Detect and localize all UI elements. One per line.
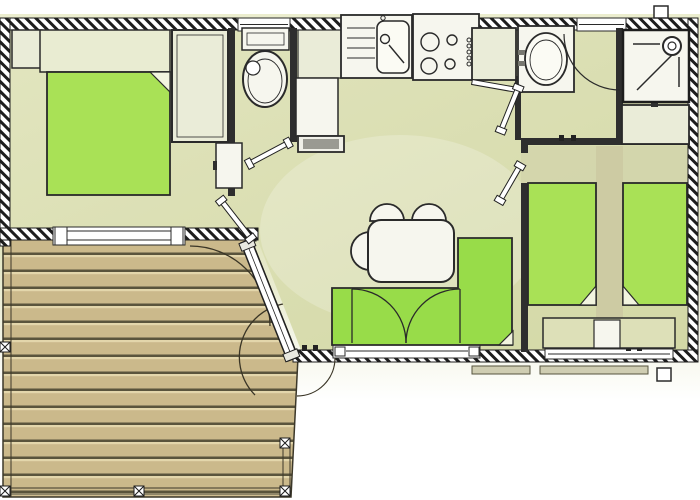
toilet-flush xyxy=(246,61,260,75)
hall-cabinet xyxy=(216,143,242,188)
counter-leg xyxy=(296,78,338,136)
pillow-shelf xyxy=(40,30,170,72)
outside-step-1 xyxy=(472,366,530,374)
single-bed-left xyxy=(528,183,596,305)
wardrobe xyxy=(172,30,228,142)
counter-corner xyxy=(298,30,343,78)
floor-plan-drawing xyxy=(0,0,700,500)
nightstand xyxy=(12,30,42,68)
vent-top xyxy=(654,6,668,18)
vent-bottom xyxy=(657,368,671,381)
sink-bowl xyxy=(377,21,409,73)
basin-tap-2 xyxy=(518,61,525,66)
washbasin xyxy=(525,33,567,85)
wall-living-bedroom2 xyxy=(521,183,528,352)
shower-head-icon xyxy=(663,37,681,55)
bathroom-wardrobe xyxy=(472,28,516,80)
hall-cabinet-handle xyxy=(213,161,217,170)
double-bed xyxy=(47,72,170,195)
basin-tap-1 xyxy=(518,50,525,55)
master-bedroom-window xyxy=(53,227,185,245)
wall-left xyxy=(0,18,10,246)
wc xyxy=(242,28,289,107)
floor-plan-canvas xyxy=(0,0,700,500)
outside-step-2 xyxy=(540,366,648,374)
counter-end-gray xyxy=(303,139,339,149)
shower-room xyxy=(622,30,689,144)
bedside-table xyxy=(594,320,620,348)
dining-table xyxy=(368,220,454,282)
single-bed-right xyxy=(623,183,687,305)
heater-cabinet xyxy=(622,105,689,144)
cistern xyxy=(242,28,289,50)
wall-door-stub xyxy=(521,145,528,153)
